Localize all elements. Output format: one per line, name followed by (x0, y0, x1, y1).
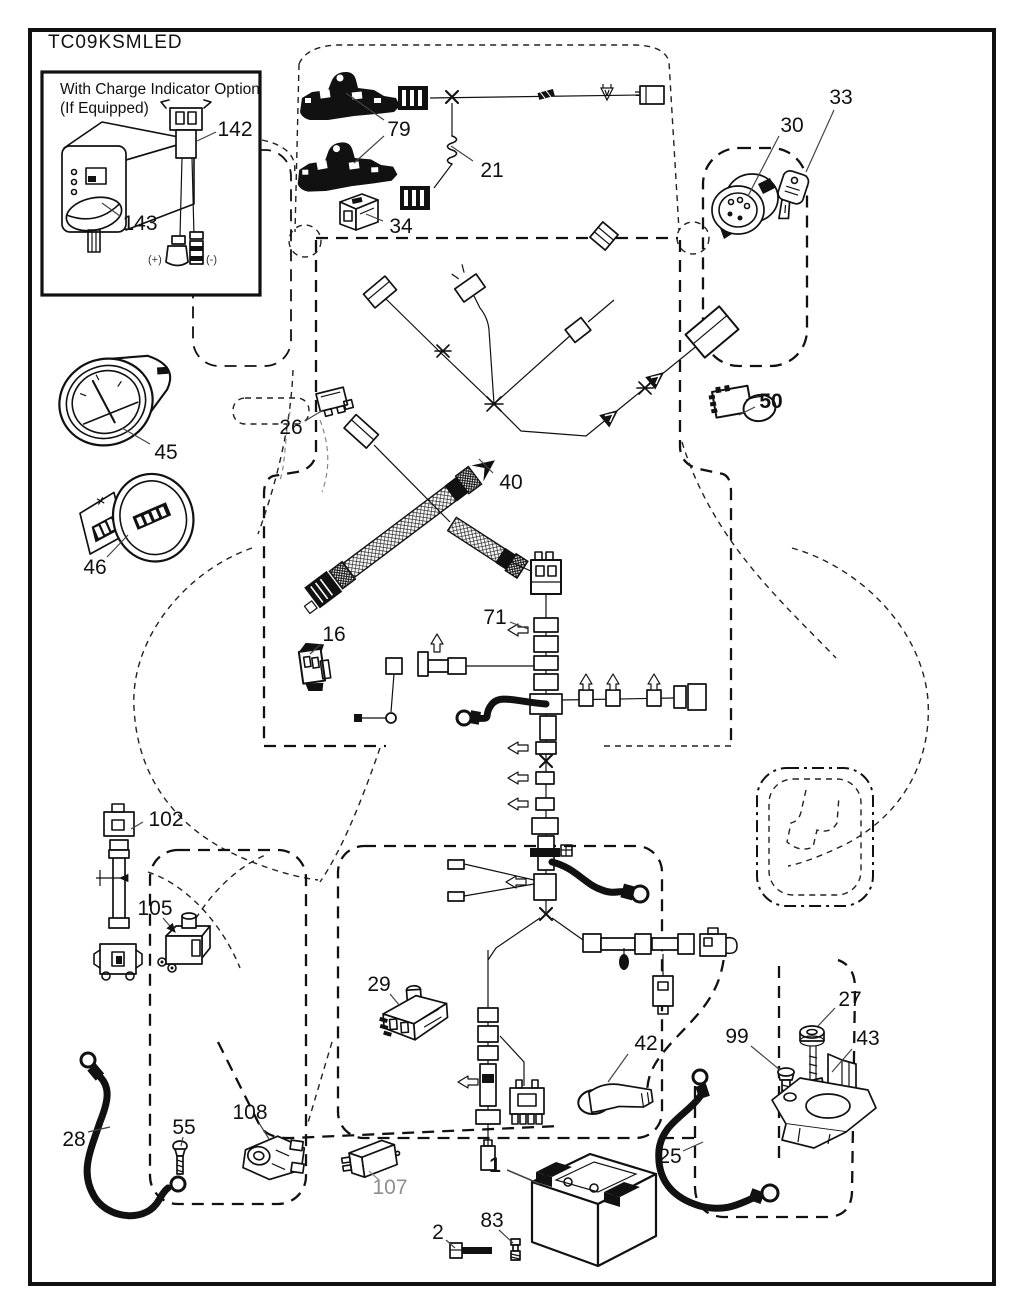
callout-71: 71 (483, 606, 506, 629)
light-switch (340, 194, 378, 230)
callout-34: 34 (389, 215, 413, 238)
callout-42: 42 (634, 1032, 657, 1055)
positive-terminal-label: (+) (148, 254, 162, 266)
callout-28: 28 (62, 1128, 85, 1151)
inset-title-line2: (If Equipped) (60, 100, 149, 117)
callout-26: 26 (279, 416, 302, 439)
callout-105: 105 (137, 897, 172, 920)
callout-143: 143 (122, 212, 157, 235)
callout-83: 83 (480, 1209, 503, 1232)
parts-diagram: TC09KSMLED (0, 0, 1024, 1312)
callout-16: 16 (322, 623, 345, 646)
callout-79: 79 (387, 118, 410, 141)
callout-102: 102 (148, 808, 183, 831)
callout-33: 33 (829, 86, 852, 109)
callout-107: 107 (372, 1176, 407, 1199)
charge-indicator-inset: With Charge Indicator Option (If Equippe… (42, 72, 260, 295)
callout-50: 50 (759, 390, 782, 413)
callout-40: 40 (499, 471, 522, 494)
diagram-code: TC09KSMLED (48, 32, 183, 53)
callout-30: 30 (780, 114, 803, 137)
callout-2: 2 (432, 1221, 444, 1244)
callout-25: 25 (658, 1145, 681, 1168)
callout-55: 55 (172, 1116, 195, 1139)
inset-title-line1: With Charge Indicator Option (60, 81, 260, 98)
callout-43: 43 (856, 1027, 879, 1050)
callout-27: 27 (838, 988, 861, 1011)
callout-108: 108 (232, 1101, 267, 1124)
callout-29: 29 (367, 973, 390, 996)
callout-1: 1 (489, 1154, 501, 1177)
callout-21: 21 (480, 159, 503, 182)
callout-45: 45 (154, 441, 177, 464)
negative-terminal-label: (-) (206, 254, 217, 266)
schematic-page: TC09KSMLED (0, 0, 1024, 1312)
callout-46: 46 (83, 556, 106, 579)
callout-142: 142 (217, 118, 252, 141)
callout-99: 99 (725, 1025, 748, 1048)
